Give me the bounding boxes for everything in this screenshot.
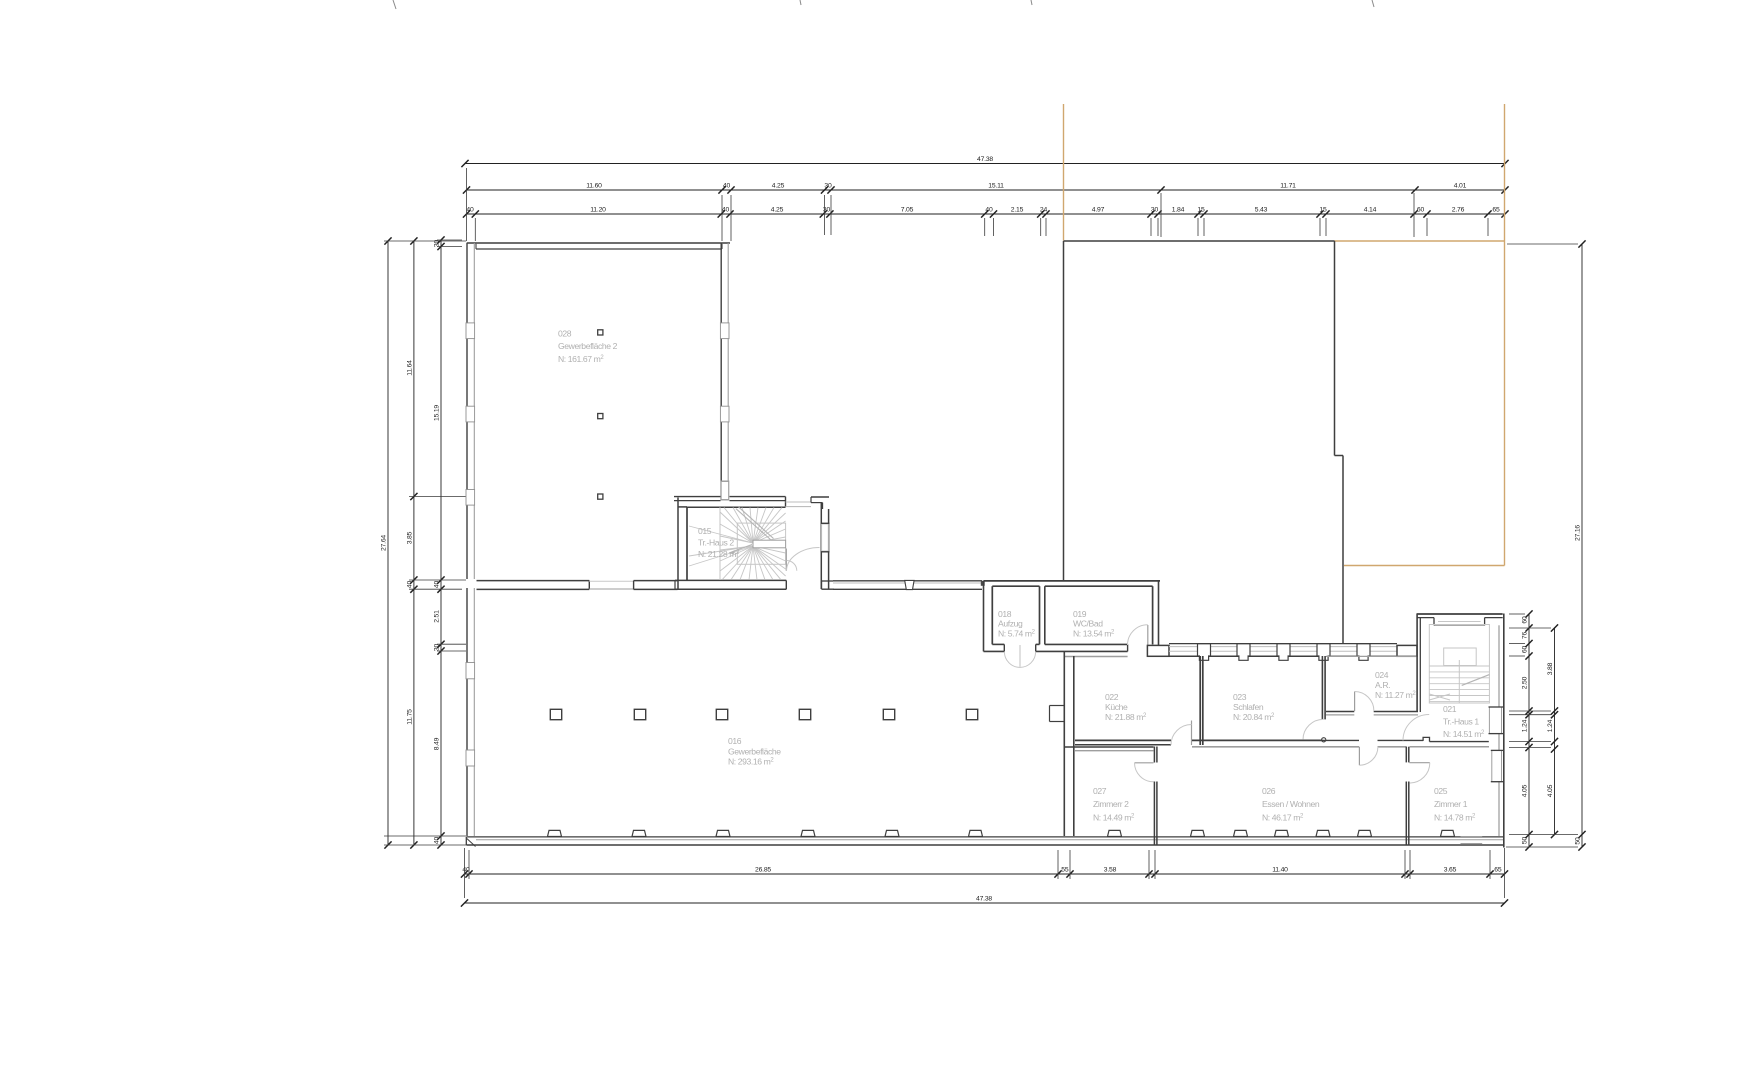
svg-text:Tr.-Haus 2: Tr.-Haus 2 (698, 538, 734, 548)
svg-text:40: 40 (722, 207, 730, 214)
svg-text:.65: .65 (1493, 867, 1502, 874)
svg-text:50: 50 (1575, 837, 1582, 845)
svg-text:40: 40 (434, 581, 441, 589)
svg-text:WC/Bad: WC/Bad (1073, 619, 1103, 629)
svg-text:015: 015 (698, 526, 712, 536)
svg-text:019: 019 (1073, 609, 1087, 619)
svg-text:.55: .55 (1060, 867, 1069, 874)
svg-text:Essen / Wohnen: Essen / Wohnen (1262, 799, 1320, 809)
svg-text:016: 016 (728, 736, 742, 746)
svg-text:15.11: 15.11 (988, 183, 1004, 190)
svg-text:4.97: 4.97 (1092, 207, 1105, 214)
svg-text:11.75: 11.75 (406, 709, 413, 725)
svg-text:Tr.-Haus 1: Tr.-Haus 1 (1443, 717, 1479, 727)
svg-text:24: 24 (1040, 207, 1048, 214)
svg-text:40: 40 (466, 207, 474, 214)
svg-text:Schlafen: Schlafen (1233, 702, 1264, 712)
svg-text:15: 15 (1197, 207, 1205, 214)
svg-text:50: 50 (1522, 837, 1529, 845)
svg-text:15.19: 15.19 (434, 405, 441, 421)
svg-text:1.24: 1.24 (1522, 719, 1529, 732)
svg-text:4.01: 4.01 (1454, 183, 1467, 190)
svg-text:N: 21.28 m2: N: 21.28 m2 (698, 549, 740, 559)
svg-text:4.14: 4.14 (1364, 207, 1377, 214)
svg-text:Aufzug: Aufzug (998, 619, 1023, 629)
svg-text:023: 023 (1233, 692, 1247, 702)
svg-text:60: 60 (1417, 207, 1425, 214)
svg-text:2.50: 2.50 (1522, 676, 1529, 689)
svg-text:2.51: 2.51 (434, 610, 441, 623)
svg-text:N: 20.84 m2: N: 20.84 m2 (1233, 712, 1275, 722)
svg-text:26.85: 26.85 (755, 867, 771, 874)
svg-text:15: 15 (1319, 207, 1327, 214)
svg-text:N: 13.54 m2: N: 13.54 m2 (1073, 628, 1115, 638)
svg-text:N: 5.74 m2: N: 5.74 m2 (998, 628, 1036, 638)
svg-text:018: 018 (998, 609, 1012, 619)
svg-text:Zimmerr 2: Zimmerr 2 (1093, 799, 1129, 809)
svg-text:4.25: 4.25 (772, 183, 785, 190)
svg-text:N: 14.78 m2: N: 14.78 m2 (1434, 812, 1476, 822)
svg-text:3.85: 3.85 (406, 531, 413, 544)
svg-text:8.49: 8.49 (434, 737, 441, 750)
svg-text:026: 026 (1262, 786, 1276, 796)
svg-text:1.84: 1.84 (1172, 207, 1185, 214)
svg-text:Gewerbefläche: Gewerbefläche (728, 746, 781, 756)
svg-text:40: 40 (723, 183, 731, 190)
svg-text:024: 024 (1375, 670, 1389, 680)
svg-text:30: 30 (824, 183, 832, 190)
svg-text:4.25: 4.25 (771, 207, 784, 214)
svg-text:N: 161.67 m2: N: 161.67 m2 (558, 354, 604, 364)
svg-text:11.64: 11.64 (406, 360, 413, 376)
svg-text:40: 40 (406, 581, 413, 589)
svg-text:47.38: 47.38 (976, 896, 992, 903)
svg-text:11.71: 11.71 (1280, 183, 1296, 190)
svg-text:27.16: 27.16 (1575, 525, 1582, 541)
svg-text:76: 76 (1522, 632, 1529, 640)
svg-text:27.64: 27.64 (381, 535, 388, 551)
svg-text:A.R.: A.R. (1375, 680, 1390, 690)
svg-text:30: 30 (1151, 207, 1159, 214)
svg-text:65: 65 (1492, 207, 1500, 214)
svg-text:4.05: 4.05 (1522, 784, 1529, 797)
svg-text:2.76: 2.76 (1452, 207, 1465, 214)
svg-text:N: 46.17 m2: N: 46.17 m2 (1262, 812, 1304, 822)
svg-text:30: 30 (823, 207, 831, 214)
svg-text:N: 11.27 m2: N: 11.27 m2 (1375, 690, 1416, 700)
svg-text:60: 60 (1522, 646, 1529, 654)
svg-text:021: 021 (1443, 704, 1457, 714)
svg-text:N: 14.49 m2: N: 14.49 m2 (1093, 812, 1135, 822)
svg-text:Küche: Küche (1105, 702, 1128, 712)
svg-text:2.15: 2.15 (1011, 207, 1024, 214)
svg-text:028: 028 (558, 329, 572, 339)
svg-text:3.88: 3.88 (1547, 662, 1554, 675)
svg-text:1.24: 1.24 (1547, 719, 1554, 732)
svg-text:40: 40 (985, 207, 993, 214)
svg-text:027: 027 (1093, 786, 1107, 796)
svg-text:025: 025 (1434, 786, 1448, 796)
svg-text:40: 40 (434, 837, 441, 845)
svg-text:022: 022 (1105, 692, 1119, 702)
svg-text:N: 21.88 m2: N: 21.88 m2 (1105, 712, 1147, 722)
svg-text:3.58: 3.58 (1104, 867, 1117, 874)
svg-text:Gewerbefläche 2: Gewerbefläche 2 (558, 341, 618, 351)
svg-text:11.60: 11.60 (586, 183, 602, 190)
svg-text:30: 30 (434, 644, 441, 652)
svg-text:5.43: 5.43 (1255, 207, 1268, 214)
svg-text:7.05: 7.05 (901, 207, 914, 214)
svg-text:4.05: 4.05 (1547, 784, 1554, 797)
svg-text:3.65: 3.65 (1444, 867, 1457, 874)
svg-text:Zimmer 1: Zimmer 1 (1434, 799, 1468, 809)
svg-text:60: 60 (1522, 616, 1529, 624)
svg-text:11.40: 11.40 (1272, 867, 1288, 874)
svg-text:47.38: 47.38 (977, 156, 993, 163)
svg-text:11.20: 11.20 (590, 207, 606, 214)
svg-text:N: 14.51 m2: N: 14.51 m2 (1443, 729, 1485, 739)
svg-text:N: 293.16 m2: N: 293.16 m2 (728, 757, 774, 767)
